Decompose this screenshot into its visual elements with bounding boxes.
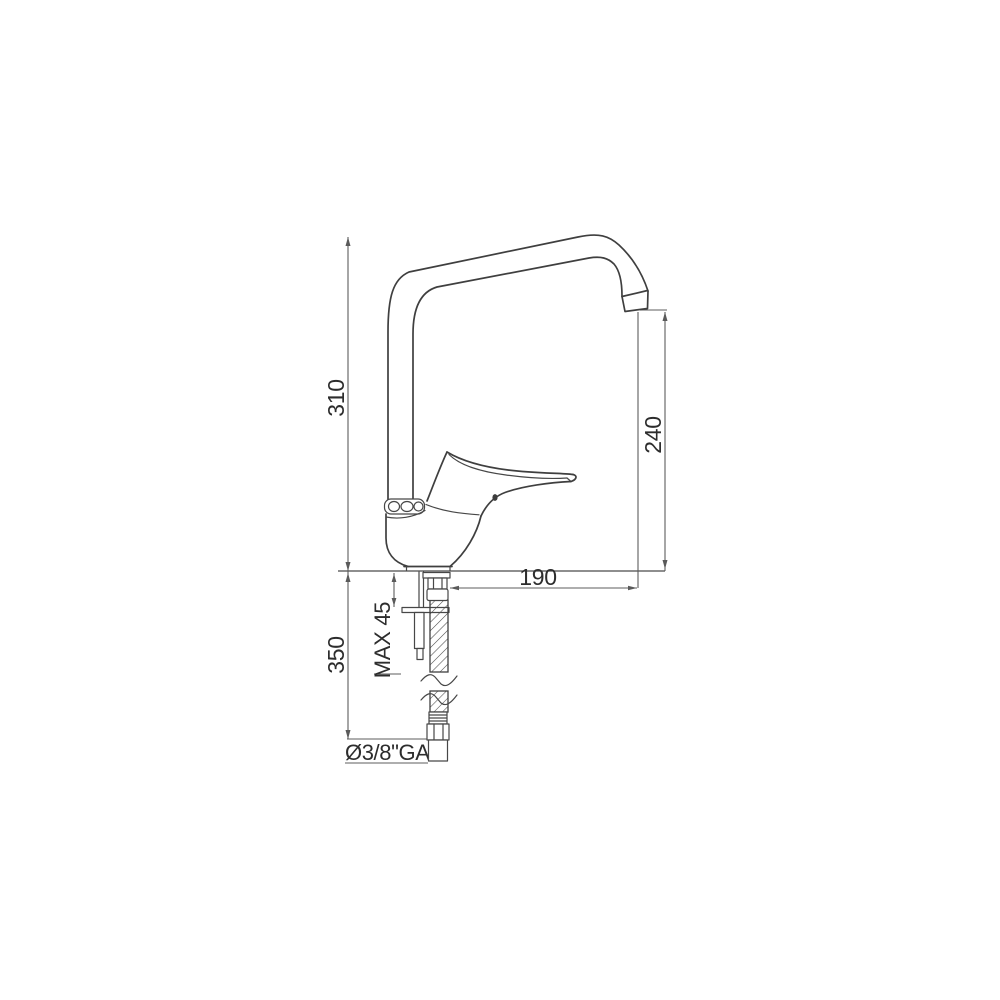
handle-lever xyxy=(426,452,576,567)
faucet-dimension-diagram: 310 240 190 350 MAX 45 Ø3/8"GAS xyxy=(0,0,1000,1000)
technical-drawing-canvas: 310 240 190 350 MAX 45 Ø3/8"GAS xyxy=(0,0,1000,1000)
threaded-shank xyxy=(430,600,448,712)
label-total-height: 310 xyxy=(323,379,349,416)
aerator-tip xyxy=(622,291,648,312)
label-hose-length: 350 xyxy=(323,636,349,673)
faucet-body xyxy=(386,511,452,571)
handle-joint-dot xyxy=(492,494,497,501)
hose-crimp xyxy=(429,712,447,724)
faucet xyxy=(385,235,649,570)
spout-ring-nut xyxy=(385,499,425,514)
hex-nut xyxy=(427,724,449,761)
label-max-deck-thickness: MAX 45 xyxy=(370,602,395,679)
break-symbol xyxy=(421,675,457,705)
label-spout-height: 240 xyxy=(640,416,666,453)
dimension-labels: 310 240 190 350 MAX 45 Ø3/8"GAS xyxy=(323,379,666,765)
spout xyxy=(388,235,648,499)
under-counter-hardware xyxy=(402,572,457,761)
shank-fittings xyxy=(423,573,450,601)
mounting-stud xyxy=(415,572,425,660)
label-spout-reach: 190 xyxy=(519,564,556,590)
